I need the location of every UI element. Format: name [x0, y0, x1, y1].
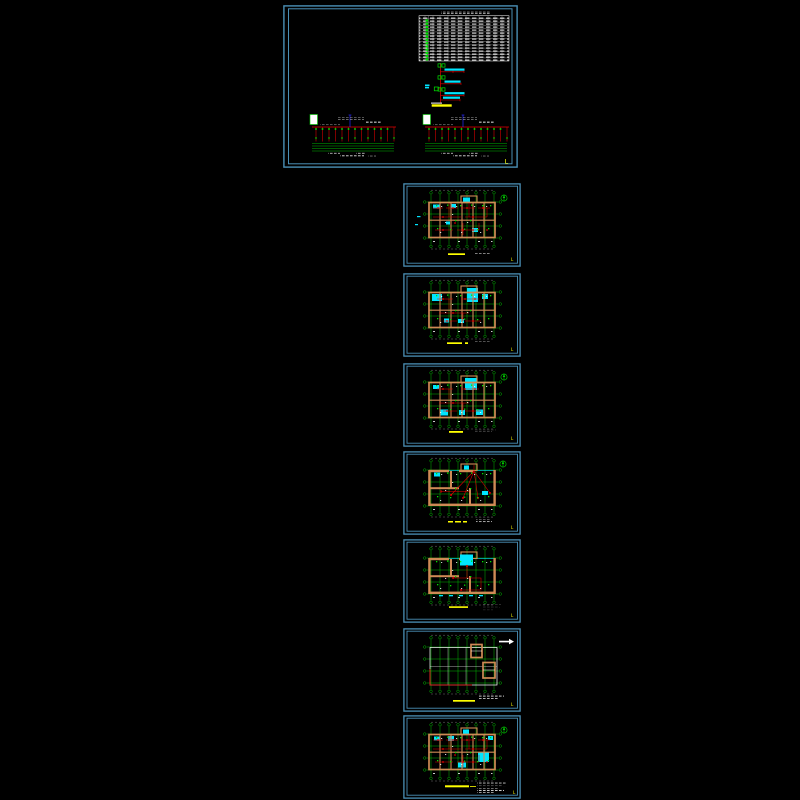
- north-arrow-icon: [501, 374, 507, 380]
- title-annotation: [453, 695, 504, 701]
- floor-plan-d-drawing: L: [403, 451, 521, 535]
- system-diagram-drawing: L: [283, 5, 518, 168]
- corner-label: L: [511, 347, 514, 352]
- floor-plan-e-drawing: L: [403, 539, 521, 623]
- sheet-floor-plan-f[interactable]: L: [403, 715, 521, 799]
- sheet-floor-plan-b[interactable]: L: [403, 273, 521, 357]
- direction-arrow-icon: [499, 639, 514, 645]
- sheet-floor-plan-a[interactable]: L: [403, 183, 521, 267]
- roof-plan-drawing: L: [403, 628, 521, 712]
- floor-plan-c-drawing: L: [403, 363, 521, 447]
- fixture-symbols: [436, 205, 491, 231]
- corner-label: L: [513, 790, 516, 795]
- stair-shafts: [471, 645, 495, 679]
- title-annotation: [449, 603, 501, 611]
- title-annotation: [447, 341, 491, 344]
- north-arrow-icon: [500, 461, 506, 467]
- sheet-floor-plan-c[interactable]: L: [403, 363, 521, 447]
- schedule-table: [419, 11, 509, 61]
- corner-label: L: [511, 702, 514, 707]
- title-annotation: [449, 429, 496, 433]
- corner-label: L: [511, 525, 514, 530]
- ground-bus-bar: [432, 104, 452, 106]
- title-annotation: [445, 782, 506, 793]
- floor-plan-a-drawing: L: [403, 183, 521, 267]
- fixture-symbols: [436, 385, 491, 411]
- sheet-roof-plan[interactable]: L: [403, 628, 521, 712]
- north-arrow-icon: [501, 195, 507, 201]
- floor-plan-f-drawing: L: [403, 715, 521, 799]
- corner-label: L: [511, 613, 514, 618]
- wiring-circuits: [452, 565, 481, 591]
- corner-label: L: [511, 257, 514, 262]
- drawing-canvas: L L: [0, 0, 800, 800]
- sheet-floor-plan-e[interactable]: L: [403, 539, 521, 623]
- corner-label: L: [505, 158, 509, 166]
- bus-diagram-right: [423, 115, 509, 158]
- sheet-floor-plan-d[interactable]: L: [403, 451, 521, 535]
- riser-diagram: [425, 63, 465, 107]
- bus-diagram-left: [310, 115, 396, 158]
- north-arrow-icon: [501, 727, 507, 733]
- building-walls: [428, 464, 496, 506]
- floor-plan-b-drawing: L: [403, 273, 521, 357]
- title-annotation: [448, 517, 493, 522]
- corner-label: L: [511, 436, 514, 441]
- sheet-system-diagram[interactable]: L: [283, 5, 518, 168]
- table-title: [441, 11, 490, 14]
- title-annotation: [448, 252, 490, 255]
